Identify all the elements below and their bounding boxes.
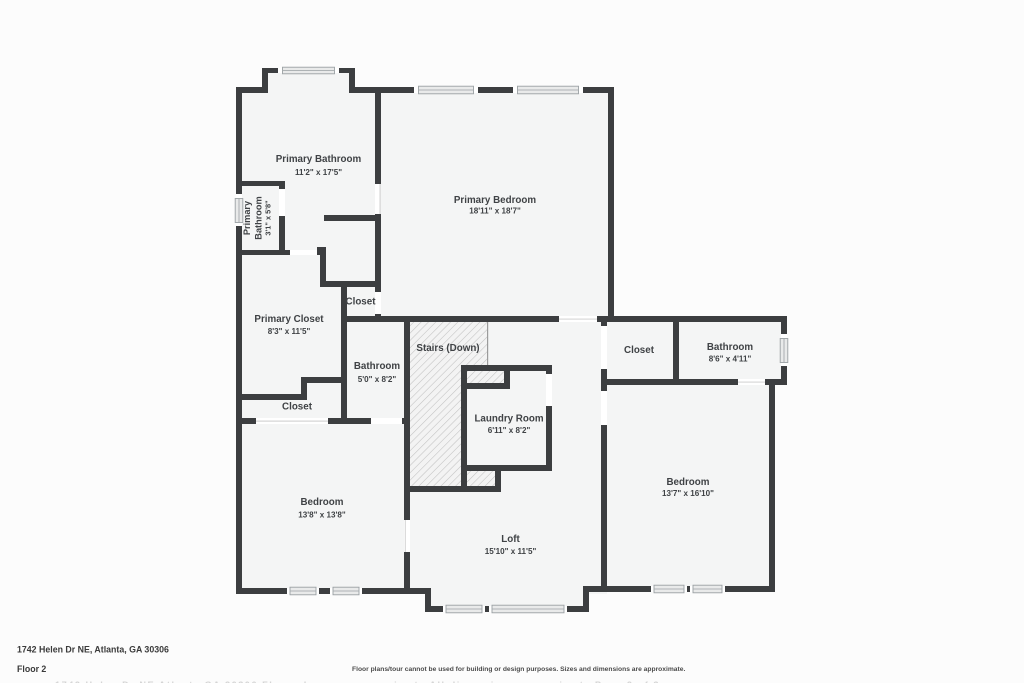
svg-text:5'0" x 8'2": 5'0" x 8'2": [358, 375, 397, 384]
svg-text:Closet: Closet: [346, 297, 377, 308]
svg-text:6'11" x 8'2": 6'11" x 8'2": [488, 426, 531, 435]
svg-text:15'10" x 11'5": 15'10" x 11'5": [485, 547, 537, 556]
svg-text:Primary Bathroom: Primary Bathroom: [276, 154, 362, 165]
svg-text:Bathroom: Bathroom: [254, 196, 264, 239]
svg-text:Loft: Loft: [501, 534, 520, 545]
svg-text:8'3" x 11'5": 8'3" x 11'5": [268, 327, 311, 336]
svg-text:Stairs (Down): Stairs (Down): [416, 343, 479, 354]
svg-text:Laundry Room: Laundry Room: [474, 414, 543, 425]
svg-text:18'11" x 18'7": 18'11" x 18'7": [469, 207, 521, 216]
svg-text:Primary Closet: Primary Closet: [254, 314, 324, 325]
svg-text:3'1" x 5'8": 3'1" x 5'8": [264, 200, 273, 236]
svg-text:13'7" x 16'10": 13'7" x 16'10": [662, 489, 714, 498]
svg-text:Floor plans/tour cannot be use: Floor plans/tour cannot be used for buil…: [352, 666, 685, 673]
svg-text:Closet: Closet: [624, 345, 655, 356]
svg-text:11'2" x 17'5": 11'2" x 17'5": [295, 168, 342, 177]
svg-text:Primary Bedroom: Primary Bedroom: [454, 195, 537, 206]
svg-text:Primary: Primary: [242, 200, 252, 235]
svg-text:13'8" x 13'8": 13'8" x 13'8": [298, 511, 346, 520]
svg-text:8'6" x 4'11": 8'6" x 4'11": [709, 355, 752, 364]
svg-text:Floor 2: Floor 2: [17, 664, 46, 674]
svg-text:Closet: Closet: [282, 402, 313, 413]
svg-text:Bathroom: Bathroom: [354, 361, 401, 372]
svg-text:Bathroom: Bathroom: [707, 342, 754, 353]
svg-text:Bedroom: Bedroom: [666, 477, 709, 488]
svg-text:1742 Helen Dr NE, Atlanta, GA: 1742 Helen Dr NE, Atlanta, GA 30306: [17, 645, 169, 655]
svg-text:Bedroom: Bedroom: [300, 497, 343, 508]
